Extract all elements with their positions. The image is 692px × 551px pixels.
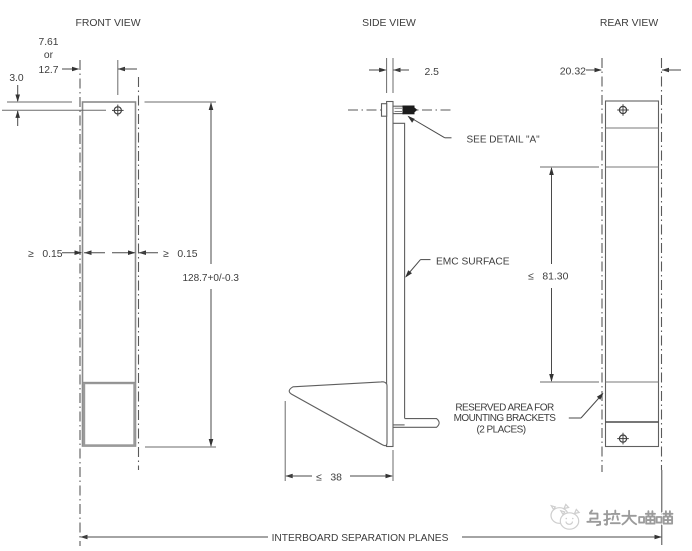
svg-text:MOUNTING BRACKETS: MOUNTING BRACKETS	[454, 413, 557, 424]
svg-text:(2 PLACES): (2 PLACES)	[477, 424, 526, 435]
svg-text:or: or	[44, 50, 54, 61]
svg-text:≥ 0.15: ≥ 0.15	[163, 249, 198, 260]
svg-text:SEE DETAIL "A": SEE DETAIL "A"	[467, 135, 541, 146]
svg-text:3.0: 3.0	[9, 73, 24, 84]
svg-text:RESERVED AREA FOR: RESERVED AREA FOR	[455, 403, 554, 414]
svg-text:128.7+0/-0.3: 128.7+0/-0.3	[182, 273, 239, 284]
svg-text:FRONT VIEW: FRONT VIEW	[75, 18, 140, 29]
svg-text:7.61: 7.61	[38, 37, 58, 48]
svg-text:20.32: 20.32	[560, 66, 586, 78]
svg-text:≤ 38: ≤ 38	[316, 473, 342, 484]
svg-text:SIDE VIEW: SIDE VIEW	[362, 18, 416, 29]
svg-text:2.5: 2.5	[425, 67, 440, 78]
svg-text:EMC SURFACE: EMC SURFACE	[436, 257, 510, 268]
svg-text:≤ 81.30: ≤ 81.30	[528, 272, 569, 283]
svg-text:≥ 0.15: ≥ 0.15	[28, 249, 63, 260]
svg-text:INTERBOARD SEPARATION PLANES: INTERBOARD SEPARATION PLANES	[272, 533, 449, 544]
svg-text:REAR VIEW: REAR VIEW	[600, 18, 659, 29]
svg-text:12.7: 12.7	[38, 65, 58, 76]
